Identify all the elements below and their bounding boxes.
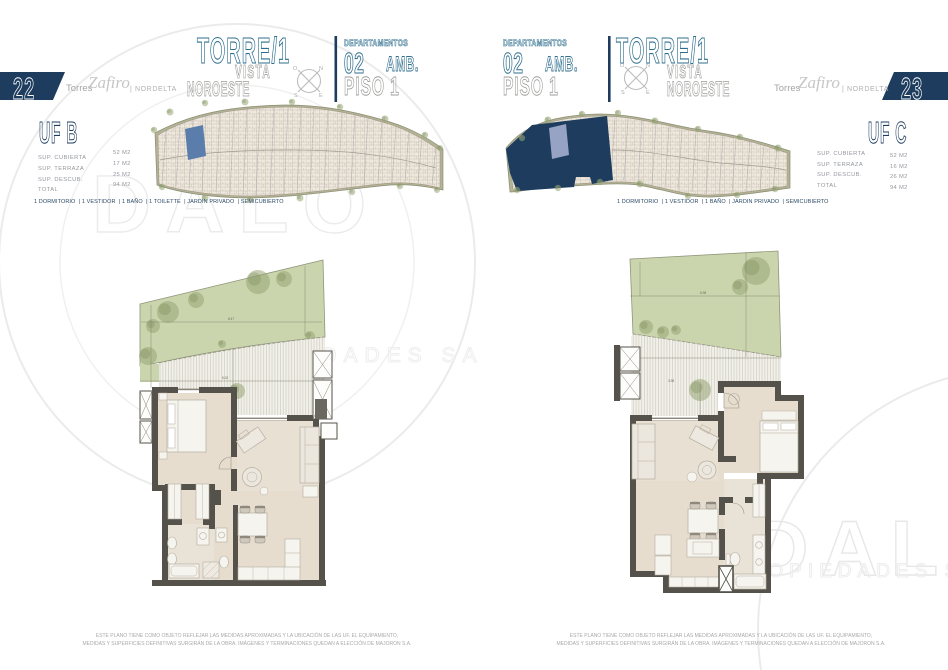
svg-text:O: O [293, 66, 298, 72]
svg-text:3.98: 3.98 [668, 379, 674, 383]
svg-text:5.02: 5.02 [222, 376, 228, 380]
svg-text:6.98: 6.98 [700, 291, 706, 295]
svg-text:S: S [294, 93, 298, 99]
svg-text:8.47: 8.47 [228, 317, 234, 321]
svg-text:E: E [319, 93, 323, 99]
svg-text:S: S [621, 90, 625, 96]
svg-text:N: N [319, 66, 323, 72]
svg-text:E: E [646, 90, 650, 96]
